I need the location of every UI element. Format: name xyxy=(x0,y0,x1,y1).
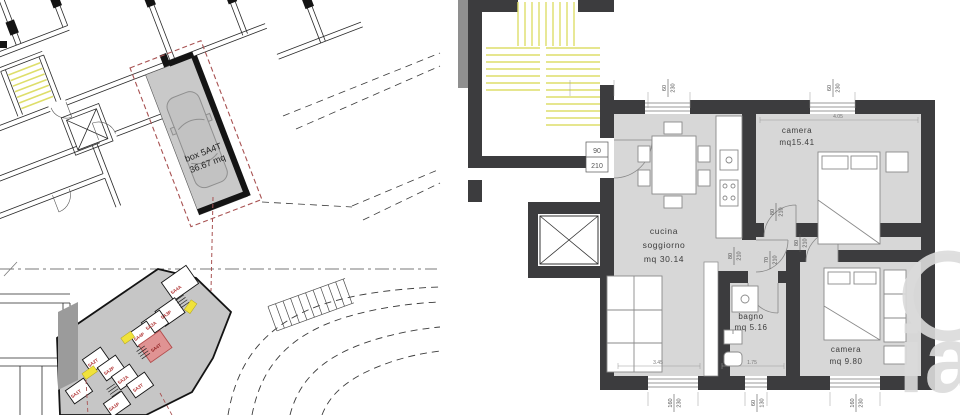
dim-w: 70 xyxy=(764,257,770,263)
sofa xyxy=(607,276,662,372)
window-bottom-living-dim: 160 230 xyxy=(668,394,683,412)
dim-w: 160 xyxy=(668,398,674,407)
dim-h: 210 xyxy=(737,251,743,260)
bagno-label: bagno xyxy=(738,312,763,321)
edge-pier xyxy=(0,41,7,48)
stair-treads xyxy=(486,2,600,125)
dim-w: 80 xyxy=(794,240,800,246)
entry-dim-w: 90 xyxy=(593,148,601,155)
camera2-label: camera xyxy=(831,345,861,354)
road-curves xyxy=(228,287,440,415)
street-parking-band xyxy=(268,278,354,330)
window-top1-dim: 60 230 xyxy=(662,79,677,97)
dim-w: 80 xyxy=(770,209,776,215)
floorplan-canvas: box 5A4T 36.67 mq xyxy=(0,0,960,415)
parking-court: 5A4A 5A3P 5A3A 5A4P 5A4T 5A2T 5A2P 5A2A … xyxy=(57,265,231,415)
dim-w: 160 xyxy=(850,398,856,407)
dim-w: 60 xyxy=(751,400,757,406)
dim-h: 210 xyxy=(779,207,785,216)
dim-h: 210 xyxy=(803,238,809,247)
camera1-area: mq15.41 xyxy=(779,138,814,147)
plan-svg: box 5A4T 36.67 mq xyxy=(0,0,960,415)
living-label-1: cucina xyxy=(650,226,678,236)
dim-camera1-width: 4.05 xyxy=(833,114,843,120)
living-label-2: soggiorno xyxy=(643,240,686,250)
bagno-area: mq 5.16 xyxy=(734,323,767,332)
garage-box: box 5A4T 36.67 mq xyxy=(130,41,262,227)
site-plan: box 5A4T 36.67 mq xyxy=(0,0,440,415)
camera1-label: camera xyxy=(782,126,812,135)
boundary-dashes xyxy=(262,53,440,220)
dim-h: 210 xyxy=(773,255,779,264)
watermark-text: ia xyxy=(898,307,960,413)
dim-h: 230 xyxy=(836,83,842,92)
toilet xyxy=(724,352,742,366)
dim-h: 230 xyxy=(671,83,677,92)
entry-dim-box: 90 210 xyxy=(586,142,608,172)
kitchen-counter xyxy=(716,116,742,238)
dim-h: 130 xyxy=(760,398,766,407)
dim-bagno-width: 1.75 xyxy=(747,360,757,366)
dim-h: 230 xyxy=(859,398,865,407)
living-area: mq 30.14 xyxy=(644,254,684,264)
dim-w: 80 xyxy=(728,253,734,259)
link-dashed-line xyxy=(211,197,213,291)
dim-living-width: 3.45 xyxy=(653,360,663,366)
shaft-strip xyxy=(704,262,718,376)
dim-w: 60 xyxy=(827,85,833,91)
upper-building: box 5A4T 36.67 mq xyxy=(0,0,408,292)
dim-w: 60 xyxy=(662,85,668,91)
court-ramp xyxy=(58,302,78,390)
window-bottom-bagno-dim: 60 130 xyxy=(751,394,766,412)
window-top2-dim: 60 230 xyxy=(827,79,842,97)
window-bottom-camera-dim: 160 230 xyxy=(850,394,865,412)
apartment-plan: camera mq15.41 cucina soggiorno mq 30.14… xyxy=(458,0,935,412)
building-stairs xyxy=(0,51,61,116)
shower xyxy=(732,286,758,312)
dim-h: 230 xyxy=(677,398,683,407)
entry-dim-h: 210 xyxy=(591,163,603,170)
camera2-area: mq 9.80 xyxy=(829,357,862,366)
